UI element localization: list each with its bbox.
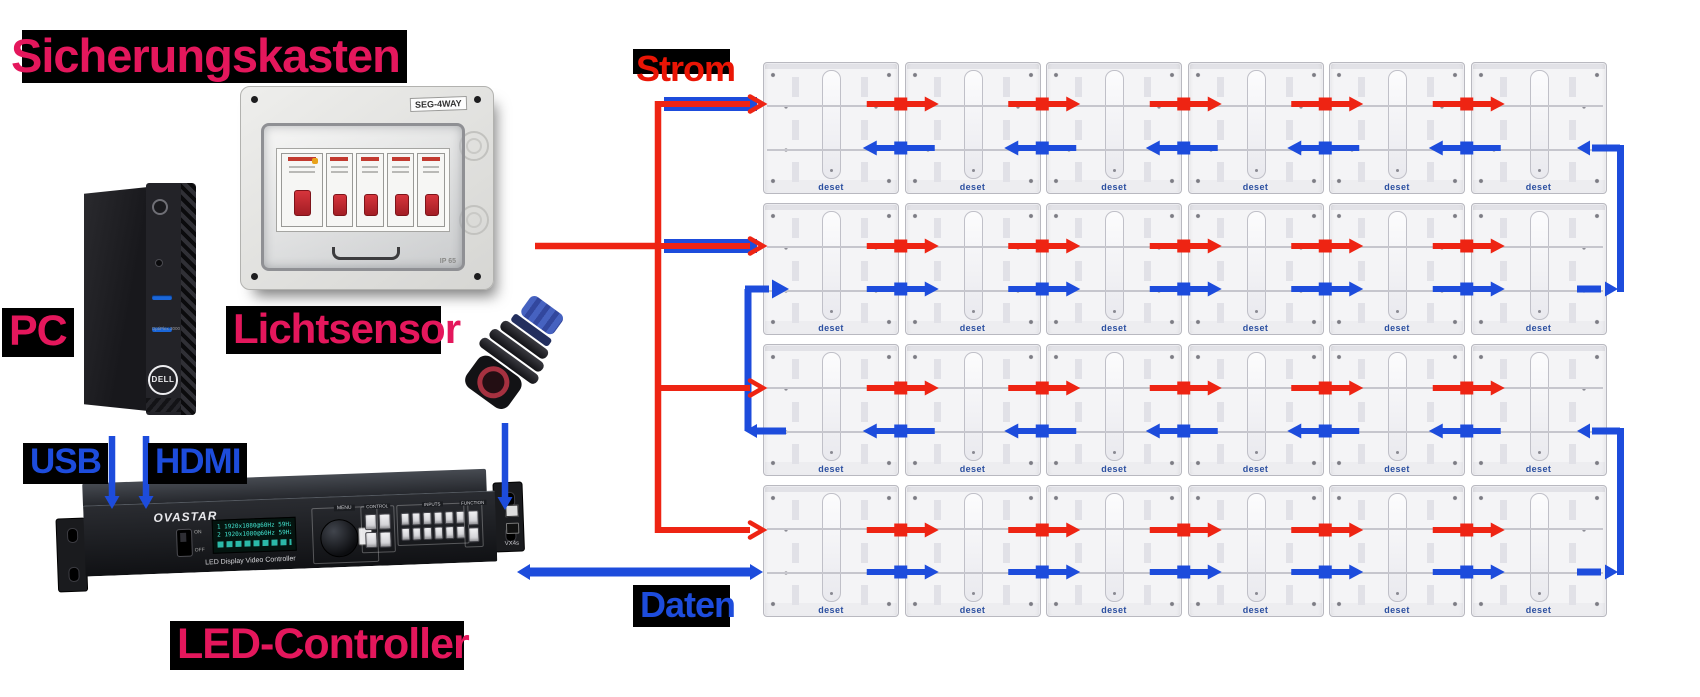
led-panel: deset — [1188, 344, 1324, 476]
breaker-strip — [276, 148, 450, 232]
deset-logo: deset — [1472, 181, 1606, 193]
panel-spine — [1105, 493, 1124, 602]
panel-spine — [1247, 211, 1266, 320]
panel-spine — [1388, 211, 1407, 320]
led-panel: deset — [1471, 485, 1607, 617]
panel-spine — [1530, 352, 1549, 461]
led-panel: deset — [1471, 62, 1607, 194]
pc-label: PC — [2, 308, 74, 357]
deset-logo: deset — [1189, 604, 1323, 616]
fusebox-label: Sicherungskasten — [4, 30, 407, 83]
panel-spine — [964, 211, 983, 320]
led-panel: deset — [1046, 62, 1182, 194]
mcb-breaker[interactable] — [356, 153, 384, 227]
led-panel: deset — [1329, 344, 1465, 476]
panel-spine — [964, 352, 983, 461]
deset-logo: deset — [764, 463, 898, 475]
panel-button[interactable] — [467, 510, 479, 525]
panel-button[interactable] — [423, 527, 432, 540]
panel-button[interactable] — [379, 531, 392, 547]
panel-spine — [1388, 70, 1407, 179]
controller-caption: LED Display Video Controller — [205, 555, 296, 566]
power-switch[interactable] — [176, 529, 193, 558]
off-label: OFF — [195, 547, 205, 553]
fusebox-window: IP 65 — [261, 123, 465, 271]
usb-label: USB — [23, 443, 108, 484]
breaker-toggle[interactable] — [294, 190, 311, 216]
controller-section: INPUTS — [396, 502, 469, 546]
deset-logo: deset — [906, 181, 1040, 193]
led-panel: deset — [1188, 62, 1324, 194]
panel-spine — [1388, 352, 1407, 461]
breaker-toggle[interactable] — [333, 194, 347, 216]
pc-side-panel — [84, 187, 148, 411]
panel-button[interactable] — [379, 513, 392, 529]
diagram-canvas: desetdesetdesetdesetdesetdesetdesetdeset… — [0, 0, 1700, 697]
screw-icon — [474, 273, 481, 280]
mcb-breaker[interactable] — [417, 153, 445, 227]
controller-model-label: VX4s — [505, 541, 520, 548]
audio-jack-icon — [155, 259, 163, 267]
panel-spine — [1530, 211, 1549, 320]
panel-spine — [964, 493, 983, 602]
menu-label: MENU — [334, 505, 355, 512]
deset-logo: deset — [906, 322, 1040, 334]
light-sensor — [455, 291, 567, 425]
deset-logo: deset — [1330, 463, 1464, 475]
led-panel: deset — [763, 485, 899, 617]
panel-spine — [1530, 493, 1549, 602]
rcd-breaker[interactable] — [281, 153, 323, 227]
rcd-indicator — [312, 158, 318, 164]
panel-spine — [1105, 70, 1124, 179]
led-panel: deset — [1188, 485, 1324, 617]
led-panel: deset — [763, 344, 899, 476]
breaker-toggle[interactable] — [364, 194, 378, 216]
controller-section: FUNCTION — [463, 502, 484, 548]
deset-logo: deset — [1472, 322, 1606, 334]
deset-logo: deset — [906, 604, 1040, 616]
mcb-breaker[interactable] — [326, 153, 354, 227]
led-panel: deset — [1329, 62, 1465, 194]
deset-logo: deset — [906, 463, 1040, 475]
screw-icon — [251, 273, 258, 280]
panel-button[interactable] — [365, 514, 378, 530]
panel-button[interactable] — [412, 527, 421, 540]
fusebox-ip-rating: IP 65 — [440, 258, 456, 265]
lcd-line: 2 1920x1080@60Hz 59Hz — [217, 529, 291, 540]
panel-button[interactable] — [400, 513, 409, 526]
deset-logo: deset — [1047, 181, 1181, 193]
mcb-breaker[interactable] — [387, 153, 415, 227]
panel-spine — [822, 211, 841, 320]
deset-logo: deset — [1330, 322, 1464, 334]
controller-front-panel: OVASTAR ON OFF 1 1920x1080@60Hz 59Hz 2 1… — [83, 490, 497, 576]
panel-spine — [1105, 352, 1124, 461]
panel-button[interactable] — [401, 528, 410, 541]
deset-logo: deset — [1330, 181, 1464, 193]
deset-logo: deset — [1189, 463, 1323, 475]
deset-logo: deset — [1047, 463, 1181, 475]
panel-spine — [822, 70, 841, 179]
section-label: INPUTS — [422, 501, 443, 507]
lcd-status-icons — [217, 539, 291, 548]
section-label: FUNCTION — [459, 500, 486, 506]
light-sensor-label: Lichtsensor — [226, 306, 467, 354]
power-label: Strom — [629, 49, 742, 91]
panel-spine — [1105, 211, 1124, 320]
led-panel: deset — [763, 203, 899, 335]
deset-logo: deset — [764, 322, 898, 334]
led-panel: deset — [905, 485, 1041, 617]
led-panel: deset — [1046, 203, 1182, 335]
deset-logo: deset — [1047, 604, 1181, 616]
screw-icon — [251, 96, 258, 103]
screw-icon — [474, 96, 481, 103]
led-panel: deset — [1046, 485, 1182, 617]
deset-logo: deset — [1189, 181, 1323, 193]
breaker-toggle[interactable] — [395, 194, 409, 216]
fusebox-handle — [332, 247, 400, 260]
panel-button[interactable] — [422, 512, 431, 525]
panel-button[interactable] — [468, 527, 480, 542]
led-panel: deset — [905, 62, 1041, 194]
panel-spine — [1388, 493, 1407, 602]
controller-lcd: 1 1920x1080@60Hz 59Hz 2 1920x1080@60Hz 5… — [212, 517, 297, 554]
led-panel: deset — [905, 344, 1041, 476]
panel-button[interactable] — [365, 532, 378, 548]
panel-spine — [822, 493, 841, 602]
hdmi-label: HDMI — [148, 443, 247, 484]
panel-button[interactable] — [444, 511, 453, 524]
panel-spine — [964, 70, 983, 179]
led-panel: deset — [1188, 203, 1324, 335]
ovastar-logo: OVASTAR — [153, 509, 217, 525]
deset-logo: deset — [1472, 463, 1606, 475]
power-button-icon — [152, 199, 168, 215]
deset-logo: deset — [1472, 604, 1606, 616]
led-panel: deset — [1046, 344, 1182, 476]
data-label: Daten — [633, 585, 742, 627]
led-panel: deset — [905, 203, 1041, 335]
dell-logo: DELL — [148, 365, 178, 395]
on-label: ON — [194, 529, 202, 535]
panel-button[interactable] — [445, 526, 454, 539]
pc-model-label: OptiPlex 3000 — [152, 326, 180, 331]
section-label: CONTROL — [364, 503, 390, 509]
led-panel: deset — [1329, 485, 1465, 617]
deset-logo: deset — [764, 604, 898, 616]
fuse-box: SEG-4WAY IP 65 — [240, 86, 494, 290]
usb-a-port-icon — [505, 505, 518, 517]
breaker-toggle[interactable] — [425, 194, 439, 216]
panel-spine — [1247, 493, 1266, 602]
deset-logo: deset — [1330, 604, 1464, 616]
deset-logo: deset — [1047, 322, 1181, 334]
led-controller-device: OVASTAR ON OFF 1 1920x1080@60Hz 59Hz 2 1… — [52, 455, 528, 602]
pc-lower-vent — [146, 398, 181, 412]
panel-button[interactable] — [434, 526, 443, 539]
controller-section: CONTROL — [360, 505, 396, 553]
led-panel: deset — [763, 62, 899, 194]
panel-spine — [1247, 352, 1266, 461]
panel-button[interactable] — [411, 512, 420, 525]
led-panel: deset — [1471, 344, 1607, 476]
deset-logo: deset — [1189, 322, 1323, 334]
led-controller-label: LED-Controller — [170, 621, 476, 670]
deset-logo: deset — [764, 181, 898, 193]
led-panel: deset — [1329, 203, 1465, 335]
fusebox-model-label: SEG-4WAY — [410, 96, 467, 112]
menu-knob[interactable] — [320, 519, 359, 558]
pc-tower: OptiPlex 3000 DELL — [84, 183, 196, 415]
pc-vent-grille — [181, 183, 196, 415]
usb-b-port-icon — [506, 523, 519, 534]
led-panel: deset — [1471, 203, 1607, 335]
panel-spine — [1247, 70, 1266, 179]
panel-button[interactable] — [433, 511, 442, 524]
panel-spine — [822, 352, 841, 461]
panel-spine — [1530, 70, 1549, 179]
usb-port-icon — [152, 295, 172, 300]
